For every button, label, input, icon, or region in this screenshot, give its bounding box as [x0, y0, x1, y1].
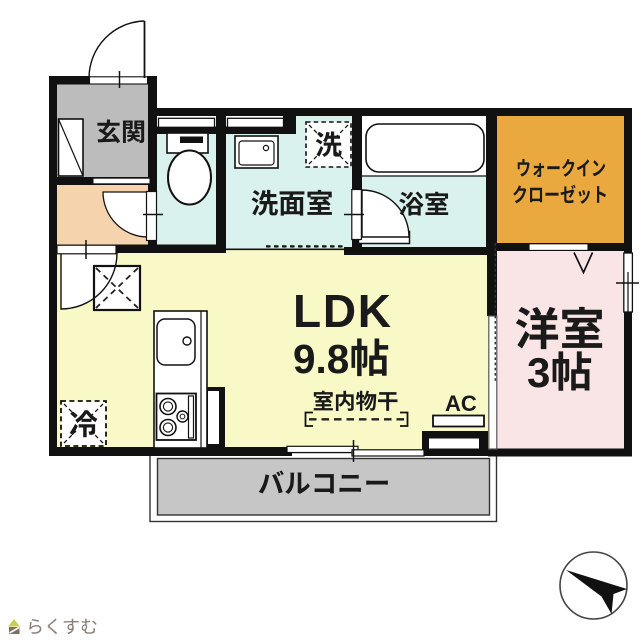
svg-text:3: 3: [527, 349, 550, 396]
svg-text:AC: AC: [445, 391, 477, 416]
svg-text:LDK: LDK: [293, 285, 391, 337]
svg-text:9.8: 9.8: [293, 336, 349, 382]
